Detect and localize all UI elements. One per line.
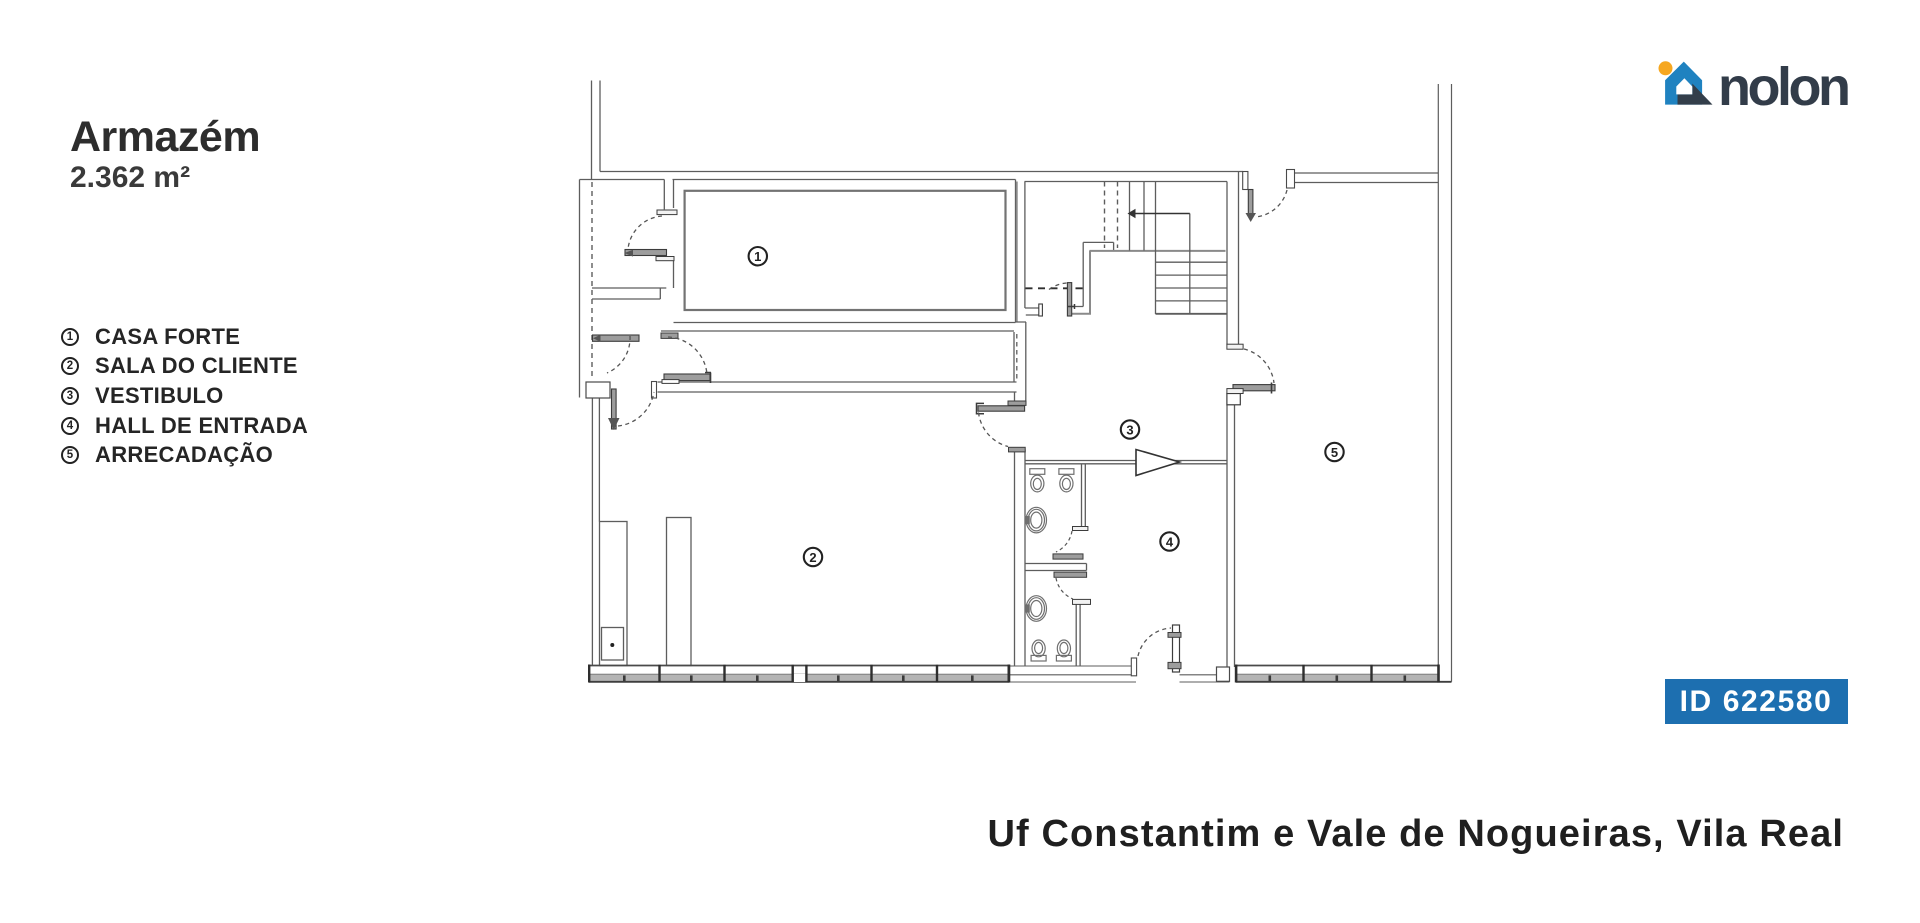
svg-text:3: 3 (1126, 422, 1133, 437)
svg-text:4: 4 (1166, 534, 1174, 549)
svg-text:5: 5 (1331, 445, 1338, 460)
svg-text:1: 1 (754, 249, 761, 264)
svg-text:2: 2 (809, 550, 816, 565)
